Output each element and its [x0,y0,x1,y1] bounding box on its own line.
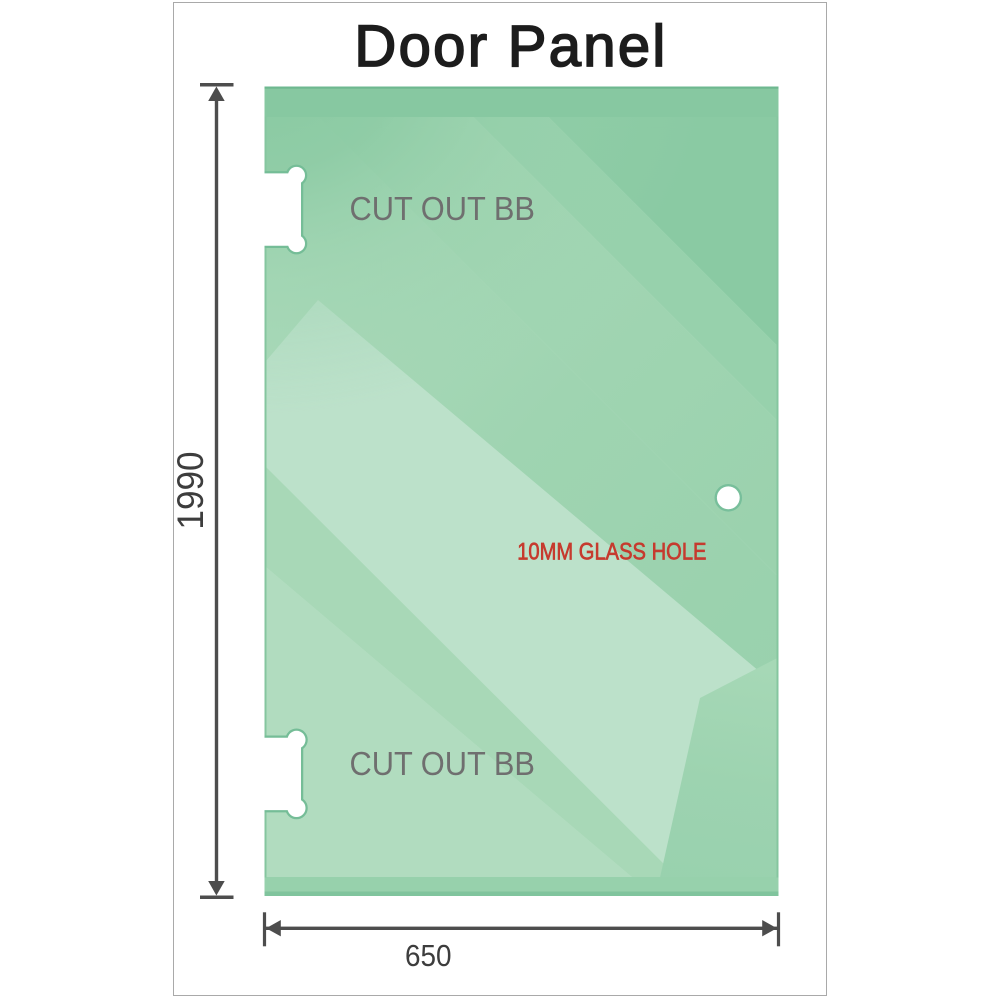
svg-text:650: 650 [405,939,452,974]
svg-text:CUT OUT BB: CUT OUT BB [350,190,535,227]
svg-text:10MM GLASS HOLE: 10MM GLASS HOLE [517,538,706,565]
svg-text:1990: 1990 [169,451,211,529]
svg-text:CUT OUT BB: CUT OUT BB [350,745,535,782]
svg-text:Door Panel: Door Panel [354,14,667,79]
